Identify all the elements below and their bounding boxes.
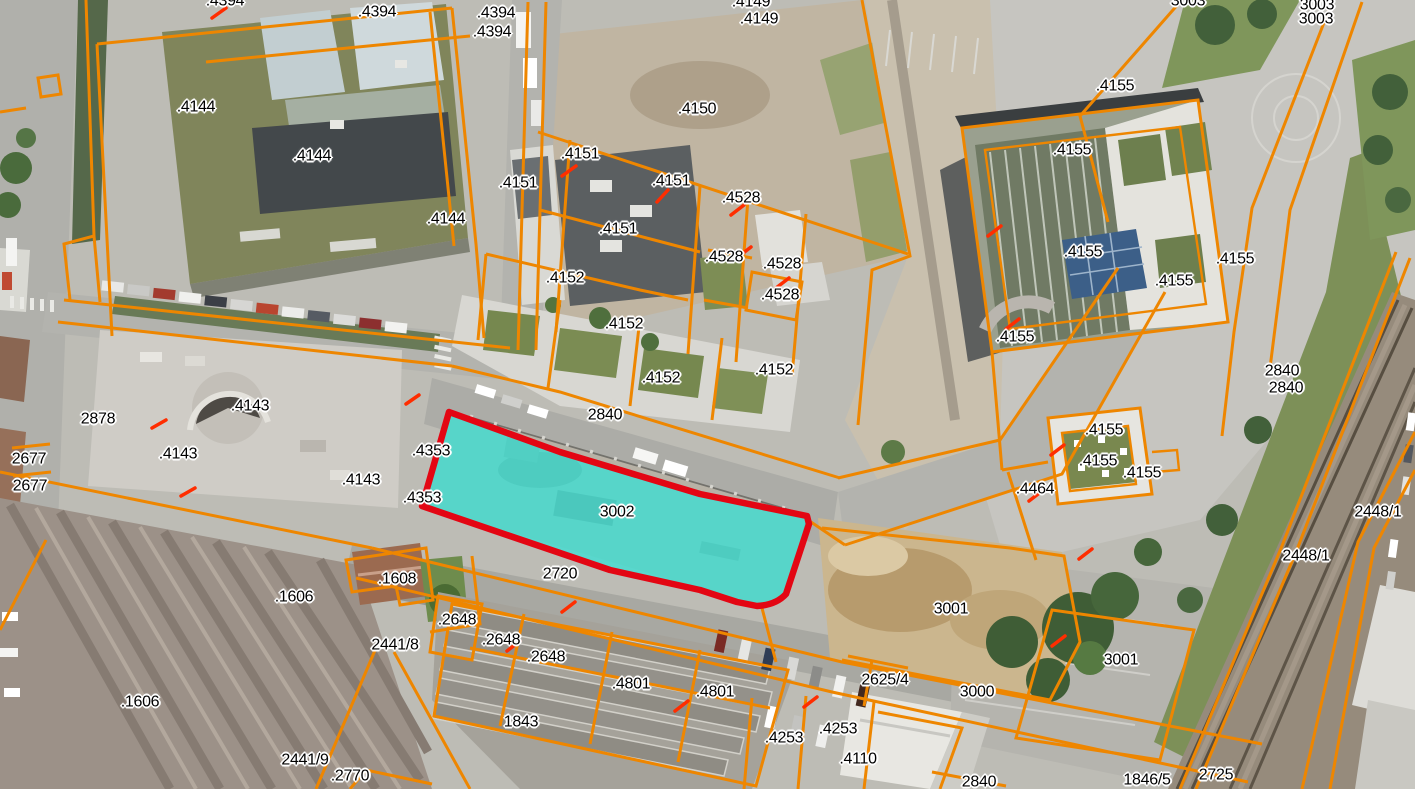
parcel-label: 3003 (1299, 12, 1333, 29)
parcel-label: .4528 (763, 257, 802, 274)
parcel-label: .4151 (561, 147, 600, 164)
parcel-label: .4152 (642, 371, 681, 388)
parcel-label: .4143 (159, 447, 198, 464)
parcel-label: .4253 (819, 722, 858, 739)
parcel-label: .4528 (761, 288, 800, 305)
parcel-label: .4143 (231, 399, 270, 416)
highlighted-parcel-label: 3002 (600, 505, 634, 522)
parcel-label: 2677 (12, 452, 46, 469)
parcel-label: .4152 (546, 271, 585, 288)
parcel-label: .4110 (839, 752, 876, 769)
parcel-label: .4528 (705, 250, 744, 267)
parcel-label: .4155 (1053, 143, 1092, 160)
parcel-label: .4528 (722, 191, 761, 208)
parcel-label: .4353 (403, 491, 442, 508)
parcel-label: .2648 (527, 650, 566, 667)
parcel-label: .4149 (740, 12, 779, 29)
parcel-label: .4155 (1216, 252, 1255, 269)
parcel-label: .4394 (477, 6, 516, 23)
parcel-label: 3003 (1171, 0, 1205, 10)
parcel-label: 3001 (934, 602, 968, 619)
parcel-label: .2648 (482, 633, 521, 650)
parcel-label: .4353 (412, 444, 451, 461)
parcel-label: .2648 (438, 613, 477, 630)
parcel-label: .4151 (652, 174, 691, 191)
parcel-label: .4144 (177, 100, 216, 117)
parcel-label: .4155 (1079, 454, 1118, 471)
parcel-label: .4152 (605, 317, 644, 334)
parcel-label: .4155 (1155, 274, 1194, 291)
parcel-label: .4152 (755, 363, 794, 380)
parcel-label: .4464 (1016, 482, 1055, 499)
parcel-label: 2720 (543, 567, 577, 584)
parcel-label: 2448/1 (1354, 505, 1401, 522)
parcel-label: .4155 (1064, 245, 1103, 262)
parcel-label: .4394 (358, 5, 397, 22)
parcel-label: 2448/1 (1282, 549, 1329, 566)
parcel-label: .4144 (427, 212, 466, 229)
parcel-label: .4155 (1123, 466, 1162, 483)
parcel-label: .4155 (1096, 79, 1135, 96)
parcel-label-layer: .4394.4394.4394.4394.4144.4144.4144.4149… (0, 0, 1415, 789)
parcel-label: .4801 (696, 685, 735, 702)
parcel-label: 2441/9 (281, 753, 328, 770)
parcel-label: 2725 (1199, 768, 1233, 785)
parcel-label: .4801 (612, 677, 651, 694)
parcel-label: .4394 (473, 25, 512, 42)
parcel-label: .4144 (293, 149, 332, 166)
parcel-label: .4155 (1085, 423, 1124, 440)
parcel-label: .4394 (206, 0, 245, 10)
parcel-label: .1606 (121, 695, 160, 712)
parcel-label: 2840 (1265, 364, 1299, 381)
parcel-label: 2625/4 (861, 673, 908, 690)
parcel-label: 2677 (13, 479, 47, 496)
parcel-label: .2770 (331, 769, 370, 786)
map-canvas[interactable]: .4394.4394.4394.4394.4144.4144.4144.4149… (0, 0, 1415, 789)
parcel-label: .4151 (599, 222, 638, 239)
parcel-label: .1608 (378, 572, 417, 589)
parcel-label: 3000 (960, 685, 994, 702)
parcel-label: 1846/5 (1123, 773, 1170, 789)
parcel-label: .4143 (342, 473, 381, 490)
parcel-label: 1843 (504, 715, 538, 732)
parcel-label: .4253 (765, 731, 804, 748)
parcel-label: 2878 (81, 412, 115, 429)
parcel-label: .1606 (275, 590, 314, 607)
parcel-label: .4151 (499, 176, 538, 193)
parcel-label: 2441/8 (371, 638, 418, 655)
parcel-label: .4150 (678, 102, 717, 119)
parcel-label: 2840 (588, 408, 622, 425)
parcel-label: 3001 (1104, 653, 1138, 670)
parcel-label: 2840 (1269, 381, 1303, 398)
parcel-label: 2840 (962, 775, 996, 789)
parcel-label: .4155 (996, 330, 1035, 347)
